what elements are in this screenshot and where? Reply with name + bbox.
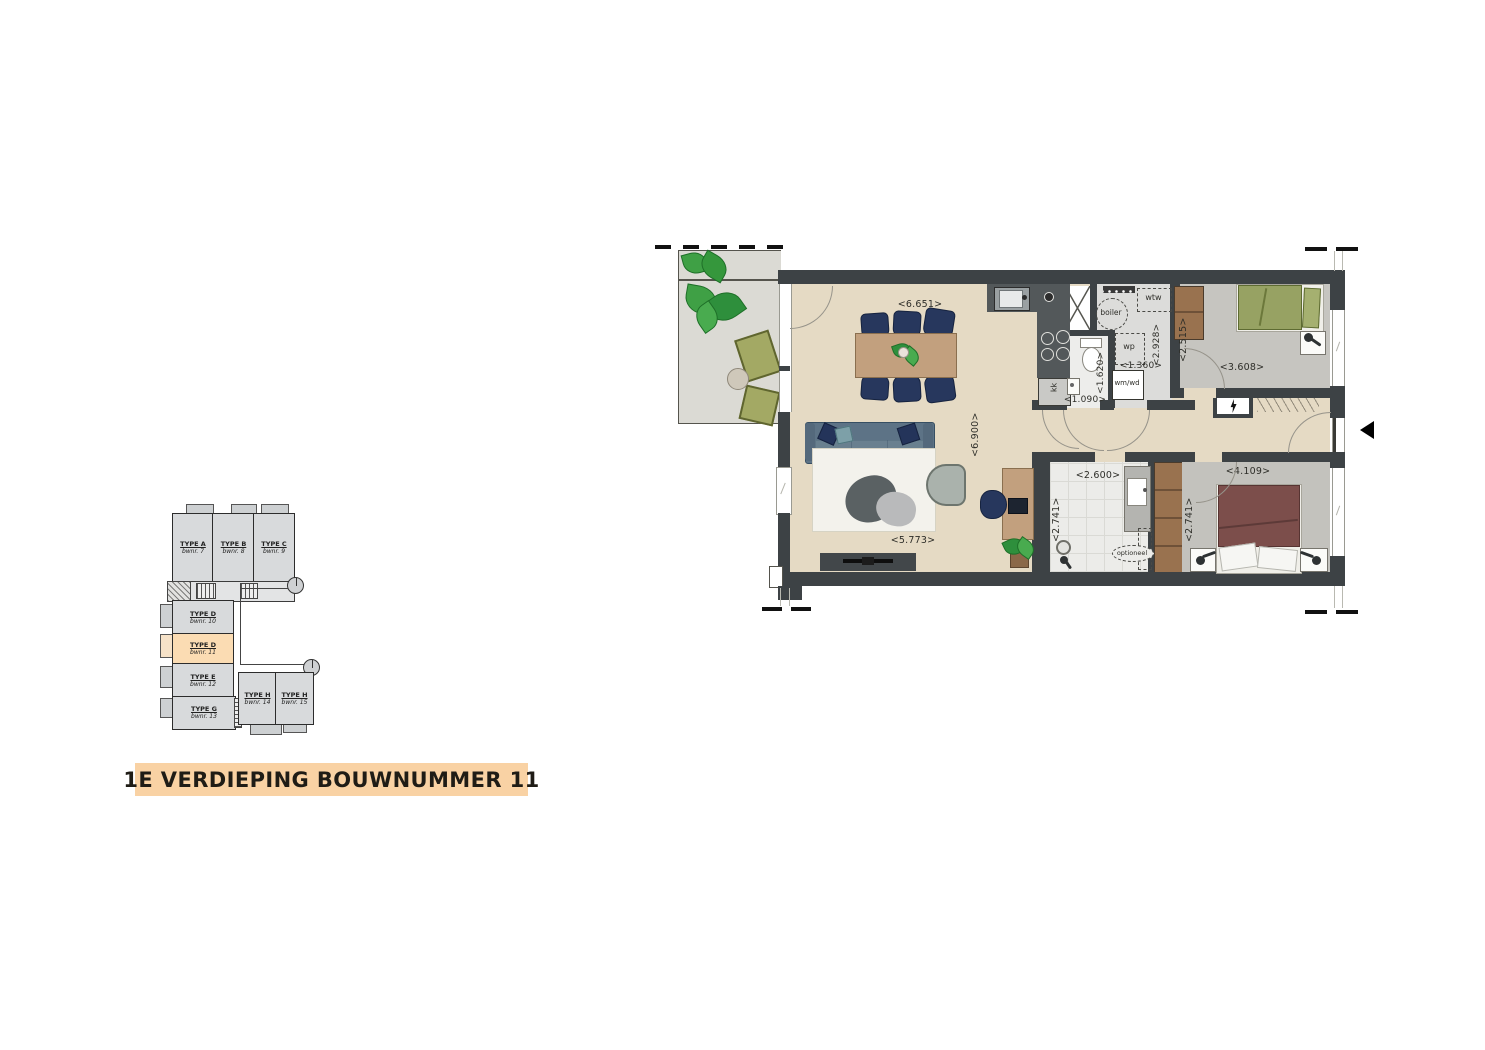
- overview-unit-8: TYPE B bwnr. 8: [212, 513, 255, 583]
- unit-type-label: TYPE C: [261, 540, 286, 548]
- unit-type-label: TYPE G: [191, 705, 217, 713]
- gallery-line: [240, 588, 241, 665]
- unit-type-label: TYPE A: [180, 540, 206, 548]
- unit-type-label: TYPE D: [190, 641, 216, 649]
- stairs: [196, 583, 216, 599]
- unit-type-label: TYPE H: [281, 691, 307, 699]
- overview-unit-15: TYPE H bwnr. 15: [275, 672, 314, 725]
- overview-unit-7: TYPE A bwnr. 7: [172, 513, 214, 583]
- unit-bwnr-label: bwnr. 11: [190, 649, 216, 657]
- overview-unit-13: TYPE G bwnr. 13: [172, 696, 236, 730]
- unit-bwnr-label: bwnr. 15: [282, 699, 308, 707]
- unit-bwnr-label: bwnr. 14: [245, 699, 271, 707]
- overview-unit-10: TYPE D bwnr. 10: [172, 600, 234, 635]
- gallery-line: [240, 588, 288, 589]
- overview-unit-11-highlighted: TYPE D bwnr. 11: [172, 633, 234, 665]
- overview-unit-12: TYPE E bwnr. 12: [172, 663, 234, 698]
- unit-bwnr-label: bwnr. 12: [190, 681, 216, 689]
- lift: [240, 583, 258, 599]
- unit-bwnr-label: bwnr. 8: [222, 548, 244, 556]
- unit-bwnr-label: bwnr. 9: [263, 548, 285, 556]
- overview-map: TYPE A bwnr. 7 TYPE B bwnr. 8 TYPE C bwn…: [0, 0, 1485, 1050]
- unit-bwnr-label: bwnr. 13: [191, 713, 217, 721]
- spiral-stair: [287, 577, 304, 594]
- unit-bwnr-label: bwnr. 7: [182, 548, 204, 556]
- overview-unit-9: TYPE C bwnr. 9: [253, 513, 295, 583]
- unit-type-label: TYPE H: [244, 691, 270, 699]
- stair-hatch: [167, 581, 191, 602]
- unit-type-label: TYPE B: [221, 540, 247, 548]
- unit-type-label: TYPE D: [190, 610, 216, 618]
- unit-bwnr-label: bwnr. 10: [190, 618, 216, 626]
- unit-type-label: TYPE E: [190, 673, 215, 681]
- floorplan-page: { "title": "1E VERDIEPING BOUWNUMMER 11"…: [0, 0, 1485, 1050]
- gallery-line: [240, 664, 306, 665]
- page-title: 1E VERDIEPING BOUWNUMMER 11: [135, 763, 528, 796]
- overview-unit-14: TYPE H bwnr. 14: [238, 672, 277, 725]
